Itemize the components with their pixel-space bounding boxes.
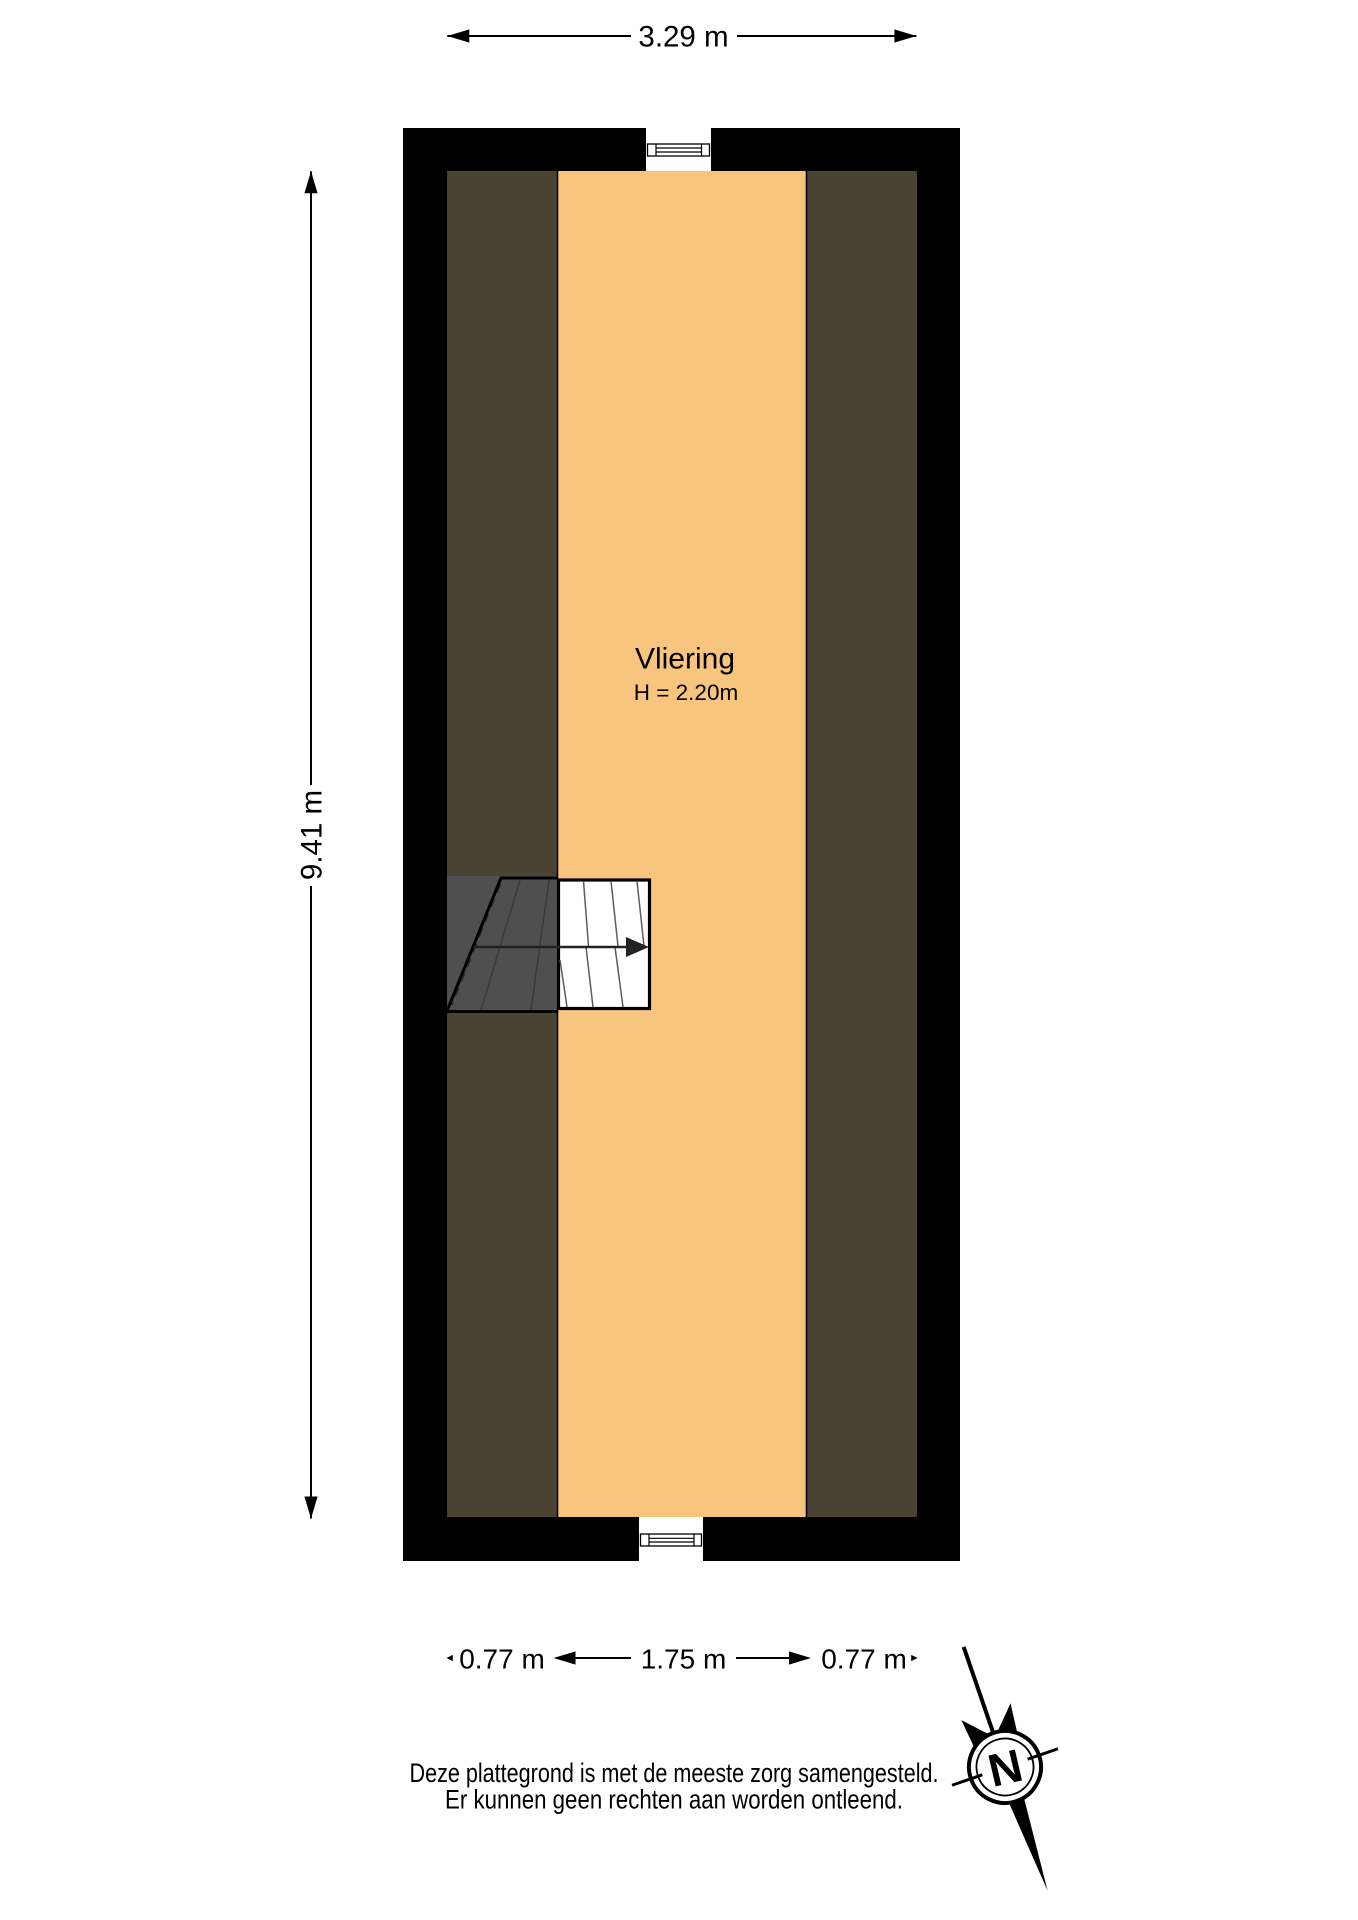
svg-text:Vliering: Vliering <box>635 643 735 676</box>
svg-text:1.75 m: 1.75 m <box>641 1643 727 1674</box>
svg-text:0.77 m: 0.77 m <box>459 1643 545 1674</box>
svg-text:H = 2.20m: H = 2.20m <box>634 680 738 705</box>
svg-text:Deze plattegrond is met de mee: Deze plattegrond is met de meeste zorg s… <box>410 1758 939 1788</box>
svg-text:0.77 m: 0.77 m <box>821 1643 907 1674</box>
svg-text:9.41 m: 9.41 m <box>296 790 329 880</box>
svg-text:3.29 m: 3.29 m <box>638 21 728 54</box>
svg-text:Er kunnen geen rechten aan wor: Er kunnen geen rechten aan worden ontlee… <box>445 1785 903 1815</box>
